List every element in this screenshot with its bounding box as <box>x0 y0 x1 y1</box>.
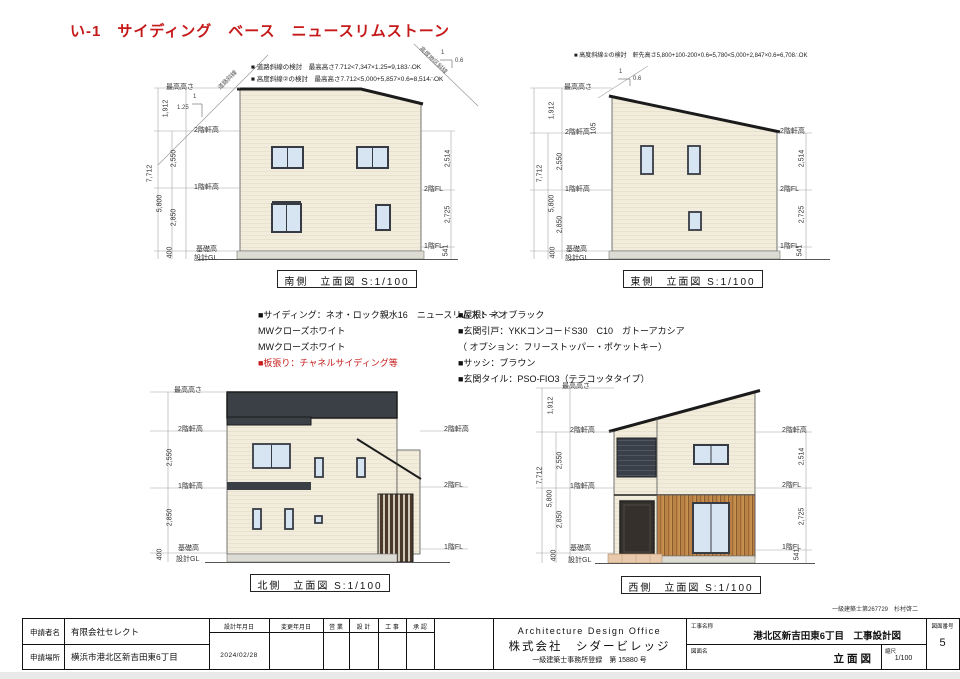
drawing-name: 立面図 <box>691 651 874 666</box>
drawing-sheet-page: い-1 サイディング ベース ニュースリムストーン ■ 道路斜線の検討 最高高さ… <box>0 0 960 679</box>
east-elevation-drawing <box>530 66 830 260</box>
slope-06b: 0.6 <box>633 76 641 82</box>
spec-sash: ■サッシ：ブラウン <box>458 356 535 369</box>
dim-value: 400 <box>550 236 557 270</box>
dim-value: 2,514 <box>799 440 806 474</box>
dim-label: 最高高さ <box>564 82 592 92</box>
dim-value: 7,712 <box>537 157 544 191</box>
south-note-height-slope2: ■ 高度斜線②の検討 最高高さ7.712<5,000+5,857×0.6=8,5… <box>251 73 443 83</box>
north-view-title: 北側 立面図 S:1/100 <box>250 574 390 592</box>
dim-label: 設計GL <box>176 554 199 564</box>
dim-value: 2,725 <box>799 198 806 232</box>
dim-label: 1階軒高 <box>570 481 595 491</box>
sheet-number-label: 図面番号 <box>926 622 959 630</box>
sales-label: 営 業 <box>323 622 349 631</box>
spec-option: （ オプション：フリーストッパー・ポケットキー） <box>458 340 667 353</box>
entrance-steps <box>608 554 662 563</box>
spec-roof: ■屋根：ネオブラック <box>458 308 544 321</box>
dim-label: 設計GL <box>568 555 591 565</box>
dim-label: 1階軒高 <box>178 481 203 491</box>
north-elevation-drawing <box>150 392 468 563</box>
east-note-height-slope1: ■ 高度斜線①の検討 軒先高さ5,800+100-200×0.6=5,780<5… <box>574 50 807 59</box>
dim-value: 541 <box>797 234 804 268</box>
dim-label: 2階軒高 <box>780 126 805 136</box>
drawing-sheet: い-1 サイディング ベース ニュースリムストーン ■ 道路斜線の検討 最高高さ… <box>0 0 960 672</box>
dim-label: 2階軒高 <box>178 424 203 434</box>
dim-value: 2,514 <box>445 142 452 176</box>
page-title: い-1 サイディング ベース ニュースリムストーン <box>70 20 450 41</box>
dim-value: 5,800 <box>547 482 554 516</box>
dim-label: 設計GL <box>194 253 217 263</box>
west-view-title: 西側 立面図 S:1/100 <box>621 576 761 594</box>
dim-value: 2,550 <box>557 145 564 179</box>
design-date-value: 2024/02/28 <box>209 652 269 659</box>
dim-value: 541 <box>794 538 801 572</box>
office-registration: 一級建築士事務所登録 第 15880 号 <box>493 655 686 665</box>
south-view-title: 南側 立面図 S:1/100 <box>277 270 417 288</box>
dim-label: 2階軒高 <box>194 125 219 135</box>
dim-value: 2,725 <box>445 198 452 232</box>
dim-label: 1階軒高 <box>194 182 219 192</box>
approval-label: 承 認 <box>406 622 434 631</box>
change-date-label: 変更年月日 <box>269 622 323 631</box>
title-block: 申請者名 有限会社セレクト 申請場所 横浜市港北区新吉田東6丁目 設計年月日 変… <box>22 618 960 670</box>
design-label: 設 計 <box>349 622 378 631</box>
dim-value: 2,514 <box>799 142 806 176</box>
dim-value: 1,912 <box>549 94 556 128</box>
dim-label: 最高高さ <box>166 82 194 92</box>
dim-label: 基礎高 <box>570 543 591 553</box>
dim-label: 2階軒高 <box>570 425 595 435</box>
dim-value: 400 <box>157 538 164 572</box>
dim-value: 1,912 <box>163 92 170 126</box>
spec-color2: MWクローズホワイト <box>258 340 346 353</box>
dim-value: 5,800 <box>157 187 164 221</box>
dim-value: 105 <box>591 112 598 146</box>
dim-value: 2,550 <box>557 444 564 478</box>
spec-entrance-door: ■玄関引戸：YKKコンコードS30 C10 ガトーアカシア <box>458 324 685 337</box>
dim-value: 541 <box>443 234 450 268</box>
dim-label: 2階軒高 <box>565 127 590 137</box>
dim-value: 2,850 <box>557 208 564 242</box>
dim-label: 最高高さ <box>174 385 202 395</box>
project-name: 港北区新吉田東6丁目 工事設計図 <box>691 628 901 642</box>
dim-label: 1階軒高 <box>565 184 590 194</box>
dim-label: 1階FL <box>444 542 463 552</box>
scale-label: 縮尺 <box>885 647 896 655</box>
dim-value: 2,550 <box>171 142 178 176</box>
dim-label: 1階FL <box>424 241 443 251</box>
sheet-number: 5 <box>926 637 959 649</box>
spec-board: ■板張り：チャネルサイディング等 <box>258 356 398 369</box>
dim-value: 1,912 <box>548 389 555 423</box>
scale-value: 1/100 <box>881 655 926 662</box>
dim-label: 2階FL <box>424 184 443 194</box>
slope-125: 1.25 <box>177 105 189 111</box>
east-view-title: 東側 立面図 S:1/100 <box>623 270 763 288</box>
dim-value: 2,850 <box>557 503 564 537</box>
dim-value: 7,712 <box>537 459 544 493</box>
spec-tile: ■玄関タイル：PSO-FIO3（テラコッタタイプ） <box>458 372 649 385</box>
dim-label: 2階軒高 <box>782 425 807 435</box>
west-elevation-drawing <box>536 388 815 564</box>
slope-1: 1 <box>193 94 196 100</box>
dim-value: 2,550 <box>167 441 174 475</box>
applicant-label: 申請者名 <box>27 627 63 638</box>
dim-label: 2階FL <box>782 480 801 490</box>
entrance-door <box>620 501 654 556</box>
architect-note: 一級建築士第267729 杉村啓二 <box>832 604 918 613</box>
dim-value: 7,712 <box>147 157 154 191</box>
dim-value: 400 <box>167 236 174 270</box>
slope-1b: 1 <box>441 50 444 56</box>
dim-value: 2,725 <box>799 500 806 534</box>
dim-value: 400 <box>551 539 558 573</box>
dim-value: 2,850 <box>171 201 178 235</box>
slope-1c: 1 <box>619 69 622 75</box>
dim-value: 5,800 <box>549 187 556 221</box>
design-date-label: 設計年月日 <box>209 622 269 631</box>
office-name-jp: 株式会社 シダービレッジ <box>493 638 686 654</box>
construction-label: 工 事 <box>378 622 406 631</box>
spec-color1: MWクローズホワイト <box>258 324 346 337</box>
dim-value: 2,850 <box>167 501 174 535</box>
south-note-road-slope: ■ 道路斜線の検討 最高高さ7.712<7,347×1.25=9,183∴OK <box>251 61 421 71</box>
applicant-name: 有限会社セレクト <box>71 626 139 638</box>
location-value: 横浜市港北区新吉田東6丁目 <box>71 651 178 663</box>
office-name-en: Architecture Design Office <box>493 626 686 636</box>
slope-06: 0.6 <box>455 58 463 64</box>
dim-label: 2階FL <box>780 184 799 194</box>
dim-label: 2階軒高 <box>444 424 469 434</box>
dim-label: 基礎高 <box>178 543 199 553</box>
dim-label: 2階FL <box>444 480 463 490</box>
dim-label: 設計GL <box>565 253 588 263</box>
location-label: 申請場所 <box>27 652 63 663</box>
